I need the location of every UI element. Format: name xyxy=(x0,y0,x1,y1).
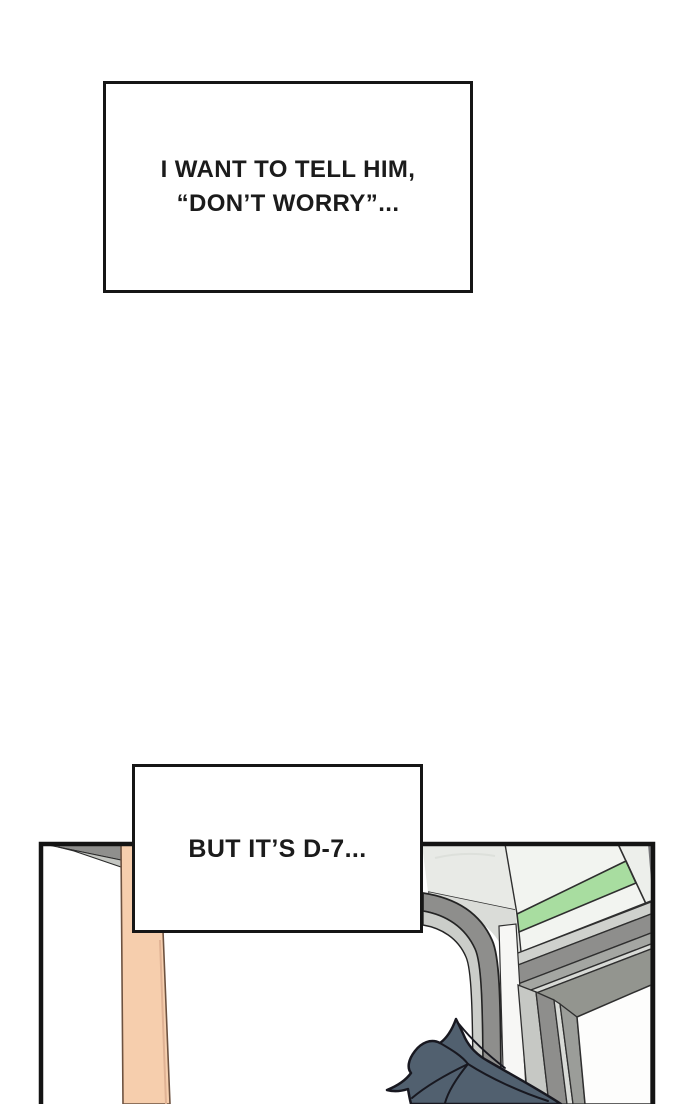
caption-line: BUT IT’S D-7... xyxy=(188,832,366,866)
caption-box-narration-2: BUT IT’S D-7... xyxy=(132,764,423,933)
caption-box-narration-1: I WANT TO TELL HIM, “DON’T WORRY”... xyxy=(103,81,473,293)
comic-page: I WANT TO TELL HIM, “DON’T WORRY”... BUT… xyxy=(0,0,690,1104)
caption-line: “DON’T WORRY”... xyxy=(177,187,400,221)
caption-line: I WANT TO TELL HIM, xyxy=(161,153,416,187)
